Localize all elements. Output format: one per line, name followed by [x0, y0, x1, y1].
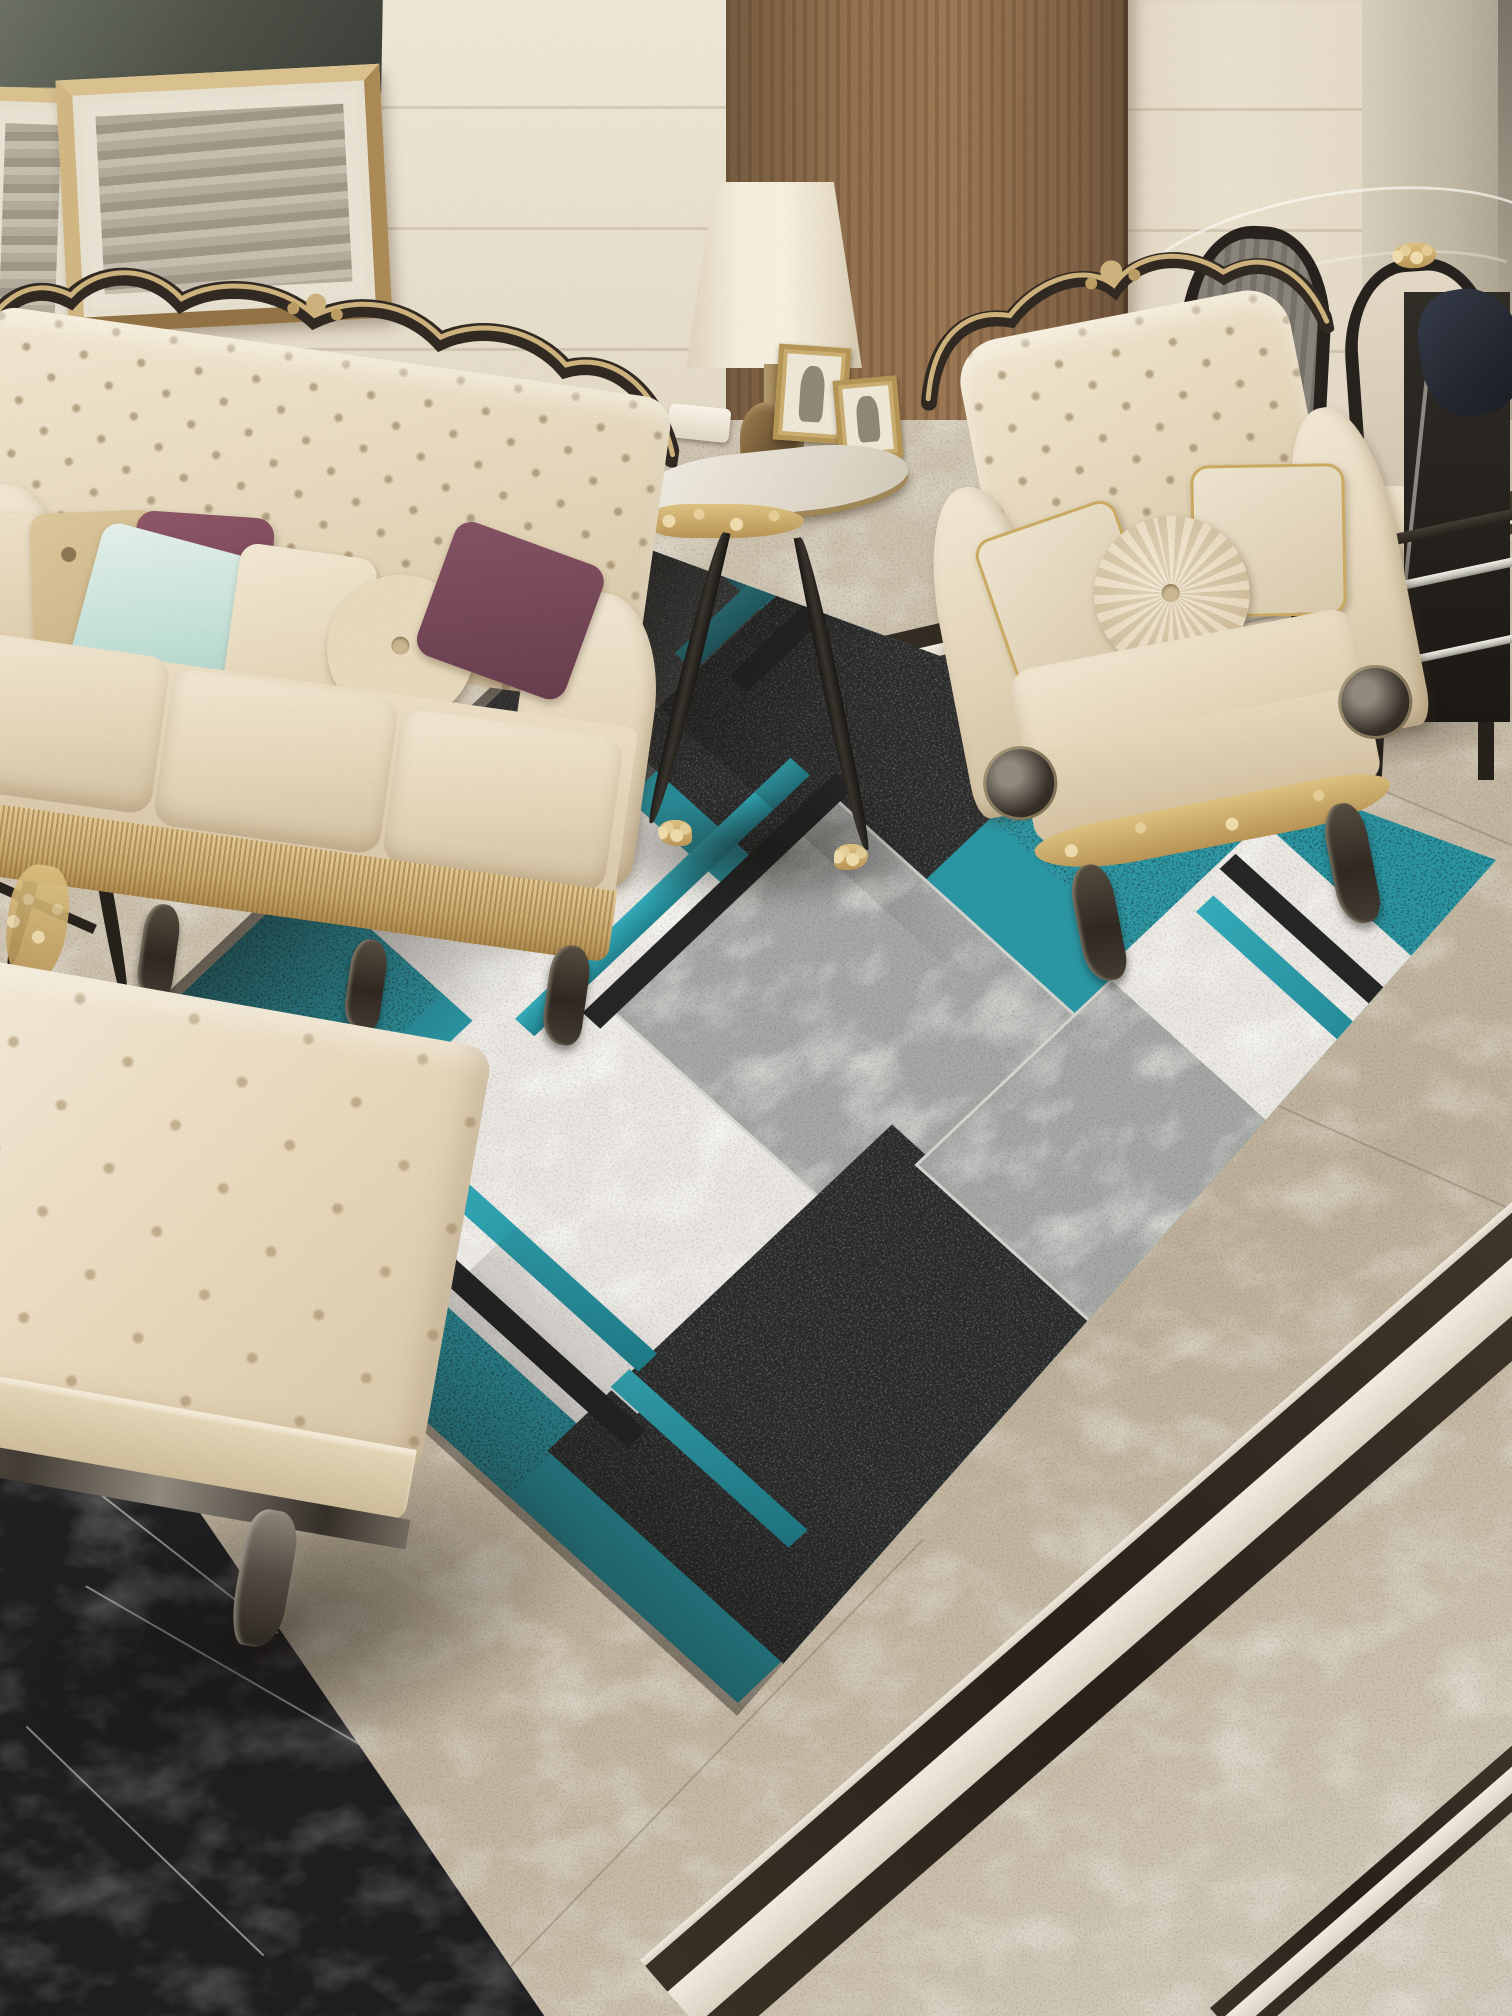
living-room-photo — [0, 0, 1512, 2016]
vignette — [0, 0, 1512, 2016]
